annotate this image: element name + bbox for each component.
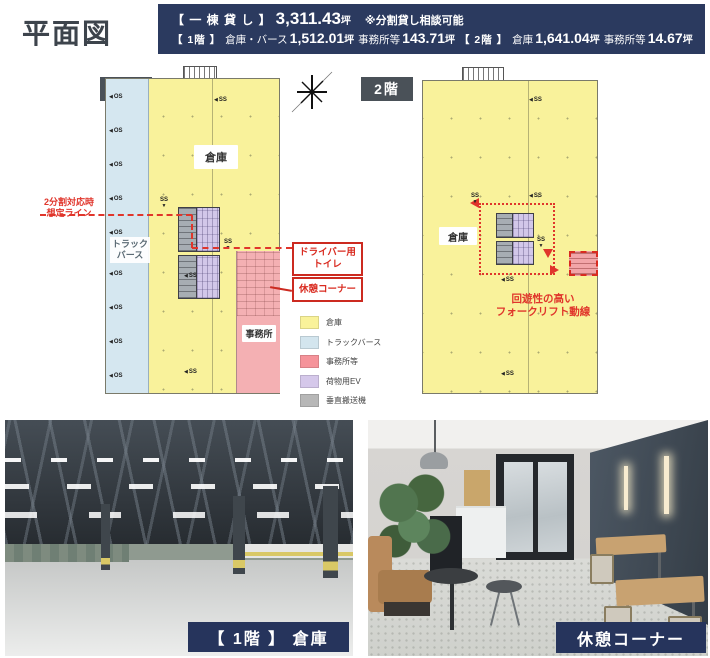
warehouse-column <box>233 496 245 574</box>
floor2-office-label: 事務所等 <box>604 32 646 47</box>
warehouse-column <box>101 504 110 570</box>
breakroom-photo-caption: 休憩コーナー <box>556 622 706 653</box>
warehouse-photo: 【 1階 】 倉庫 <box>5 420 353 656</box>
driver-toilet-line2: トイレ <box>294 259 361 271</box>
split-note-line2: 想定ライン <box>46 208 91 218</box>
floor1-office-unit: 坪 <box>445 31 455 46</box>
forklift-note-line1: 回遊性の高い <box>512 293 575 305</box>
chair <box>590 554 614 584</box>
ss-mark: ◀SS <box>184 273 197 279</box>
os-mark: ◀OS <box>109 94 123 100</box>
legend-item: 倉庫 <box>300 316 381 329</box>
floor1-office-label: 事務所等 <box>358 32 400 47</box>
legend-label: 事務所等 <box>326 356 358 367</box>
truck-berth-label: トラック バース <box>110 237 150 263</box>
floor1-use-label: 倉庫・バース <box>225 32 287 47</box>
whole-building-label: 【 一 棟 貸 し 】 <box>172 11 272 28</box>
pendant-lamp-shade <box>420 452 448 469</box>
split-note-line1: 2分割対応時 <box>44 197 94 207</box>
floor1-area-unit: 坪 <box>344 31 354 46</box>
floor2-plan: 倉庫 回遊性の高い フォークリフト動線 ◀SS ◀SS SS▼ SS▼ ◀SS … <box>422 80 598 394</box>
total-area-unit: 坪 <box>341 12 351 27</box>
ss-mark: SS▼ <box>224 239 232 251</box>
floor1-bracket: 【 1階 】 <box>172 32 221 47</box>
floor1-office-value: 143.71 <box>402 30 445 46</box>
legend-chip-warehouse <box>300 316 319 329</box>
header-line2: 【 1階 】 倉庫・バース 1,512.01 坪 事務所等 143.71 坪 【… <box>172 30 705 47</box>
ss-mark: SS▼ <box>537 237 545 249</box>
driver-toilet-line1: ドライバー用 <box>294 247 361 259</box>
legend-label: 倉庫 <box>326 317 342 328</box>
floor1-office-label: 事務所 <box>242 325 276 342</box>
os-mark: ◀OS <box>109 128 123 134</box>
loop-arrow-right <box>550 265 564 275</box>
legend-chip-truck-berth <box>300 336 319 349</box>
total-area-value: 3,311.43 <box>276 9 341 29</box>
legend-item: 垂直搬送機 <box>300 394 381 407</box>
ss-mark: SS▼ <box>471 193 479 205</box>
table-leg <box>658 550 661 580</box>
door-glass-pane <box>504 462 533 552</box>
legend-label: トラックバース <box>326 337 381 348</box>
flyer-page: 平面図 【 一 棟 貸 し 】 3,311.43 坪 ※分割貸し相談可能 【 1… <box>0 0 710 658</box>
wall-light <box>624 466 628 510</box>
warehouse-photo-caption: 【 1階 】 倉庫 <box>188 622 349 652</box>
cafe-table <box>615 576 704 607</box>
floor2-badge-label: 2階 <box>374 79 400 99</box>
split-lease-note: ※分割貸し相談可能 <box>365 12 464 28</box>
compass-icon <box>290 70 334 114</box>
truck-berth-label-line2: バース <box>110 250 150 261</box>
rest-corner-label: 休憩コーナー <box>294 284 361 296</box>
truck-berth-label-line1: トラック <box>110 239 150 250</box>
cafe-table <box>596 534 667 556</box>
floor2-badge: 2階 <box>361 77 413 101</box>
floor2-office-value: 14.67 <box>648 30 683 46</box>
kitchenette-counter <box>456 506 506 558</box>
toilet-detail <box>237 251 280 316</box>
legend-chip-cargo-ev <box>300 375 319 388</box>
os-mark: ◀OS <box>109 271 123 277</box>
legend-label: 荷物用EV <box>326 376 361 387</box>
forklift-route-note: 回遊性の高い フォークリフト動線 <box>487 293 599 318</box>
os-mark: ◀OS <box>109 339 123 345</box>
cargo-elevator <box>197 208 219 251</box>
floor2-area-value: 1,641.04 <box>535 30 590 46</box>
ss-mark: ◀SS <box>214 97 227 103</box>
os-mark: ◀OS <box>109 373 123 379</box>
highlighted-conveyor <box>569 251 598 276</box>
warehouse-column <box>323 486 338 578</box>
os-mark: ◀OS <box>109 305 123 311</box>
bistro-table-stem <box>450 578 454 630</box>
page-title: 平面図 <box>22 12 112 52</box>
legend-label: 垂直搬送機 <box>326 395 366 406</box>
os-mark: ◀OS <box>109 196 123 202</box>
os-mark: ◀OS <box>109 230 123 236</box>
bench-base <box>384 602 430 616</box>
floor2-warehouse-label: 倉庫 <box>439 227 477 245</box>
double-door <box>496 454 574 560</box>
legend: 倉庫 トラックバース 事務所等 荷物用EV 垂直搬送機 <box>300 316 381 407</box>
ss-mark: ◀SS <box>184 369 197 375</box>
rest-corner-callout: 休憩コーナー <box>292 277 363 302</box>
stool-seat <box>486 580 522 593</box>
forklift-note-line2: フォークリフト動線 <box>496 306 591 318</box>
floor1-core-block <box>178 207 220 299</box>
breakroom-photo: 休憩コーナー <box>368 420 708 656</box>
header-stats-bar: 【 一 棟 貸 し 】 3,311.43 坪 ※分割貸し相談可能 【 1階 】 … <box>158 4 705 54</box>
legend-item: 荷物用EV <box>300 375 381 388</box>
wall-light <box>664 456 669 514</box>
floor2-bracket: 【 2階 】 <box>459 32 508 47</box>
bistro-table-top <box>424 568 478 584</box>
floor2-use-label: 倉庫 <box>512 32 533 47</box>
driver-toilet-callout: ドライバー用 トイレ <box>292 242 363 276</box>
ss-mark: ◀SS <box>501 371 514 377</box>
floor2-office-unit: 坪 <box>683 31 693 46</box>
ss-mark: ◀SS <box>529 97 542 103</box>
floor2-area-unit: 坪 <box>590 31 600 46</box>
ss-mark: ◀SS <box>529 193 542 199</box>
pendant-lamp-cord <box>434 420 436 454</box>
legend-item: トラックバース <box>300 336 381 349</box>
door-glass-pane <box>538 462 567 552</box>
wood-cabinet <box>464 470 490 506</box>
truck-berth-area <box>106 79 149 393</box>
ss-mark: SS▼ <box>160 197 168 209</box>
split-dashed-line-vertical <box>191 215 193 248</box>
cargo-elevator <box>197 256 219 299</box>
ss-mark: ◀SS <box>501 277 514 283</box>
split-dashed-line <box>40 214 192 216</box>
floor1-area-value: 1,512.01 <box>290 30 345 46</box>
os-mark: ◀OS <box>109 162 123 168</box>
legend-chip-conveyor <box>300 394 319 407</box>
legend-item: 事務所等 <box>300 355 381 368</box>
legend-chip-office <box>300 355 319 368</box>
split-dashed-line-lower <box>192 247 292 249</box>
loop-arrow-down <box>543 249 553 263</box>
floor1-office-area: 事務所 <box>236 251 280 393</box>
floor1-warehouse-label: 倉庫 <box>194 145 238 169</box>
header-line1: 【 一 棟 貸 し 】 3,311.43 坪 ※分割貸し相談可能 <box>172 9 705 29</box>
